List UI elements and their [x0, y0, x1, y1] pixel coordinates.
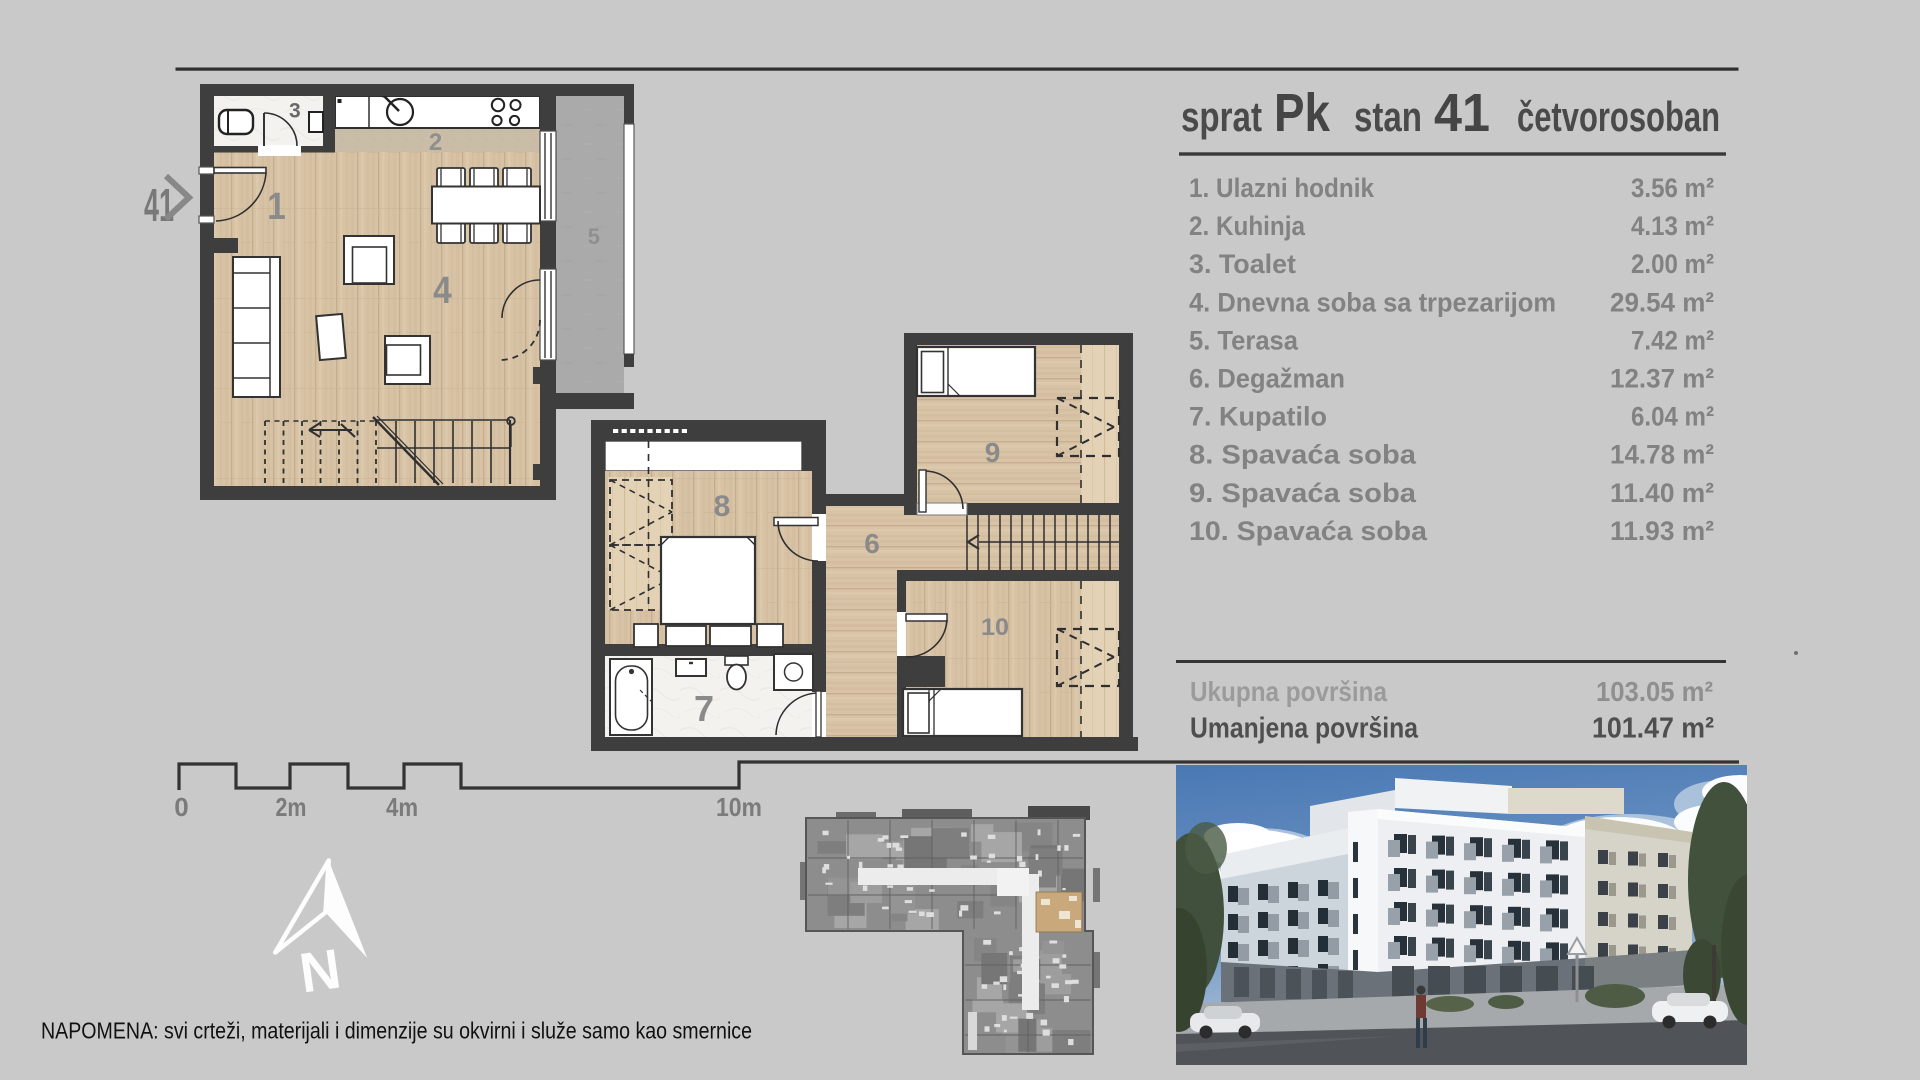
svg-text:1: 1	[267, 185, 286, 227]
svg-text:sprat: sprat	[1181, 93, 1262, 140]
svg-text:2: 2	[429, 129, 442, 156]
svg-text:6: 6	[864, 528, 880, 559]
svg-text:103.05 m²: 103.05 m²	[1596, 676, 1713, 707]
svg-text:5. Terasa: 5. Terasa	[1189, 325, 1299, 355]
svg-text:41: 41	[1434, 83, 1490, 143]
svg-text:14.78 m²: 14.78 m²	[1610, 440, 1714, 470]
svg-text:101.47 m²: 101.47 m²	[1592, 713, 1714, 745]
svg-text:12.37 m²: 12.37 m²	[1610, 364, 1714, 394]
svg-text:Umanjena površina: Umanjena površina	[1190, 713, 1419, 745]
svg-text:četvorosoban: četvorosoban	[1517, 93, 1720, 140]
svg-text:2. Kuhinja: 2. Kuhinja	[1189, 211, 1306, 241]
svg-text:7. Kupatilo: 7. Kupatilo	[1189, 402, 1327, 432]
svg-text:Ukupna površina: Ukupna površina	[1190, 676, 1387, 707]
svg-text:0: 0	[174, 792, 188, 822]
svg-text:9: 9	[985, 437, 1001, 468]
svg-text:NAPOMENA: svi crteži, materija: NAPOMENA: svi crteži, materijali i dimen…	[41, 1018, 752, 1044]
svg-text:10. Spavaća soba: 10. Spavaća soba	[1189, 516, 1428, 546]
svg-text:8: 8	[714, 490, 731, 523]
svg-text:6.04 m²: 6.04 m²	[1631, 402, 1714, 432]
svg-text:9. Spavaća soba: 9. Spavaća soba	[1189, 478, 1417, 508]
svg-text:4m: 4m	[386, 792, 418, 822]
svg-text:10: 10	[981, 614, 1009, 641]
svg-text:11.40 m²: 11.40 m²	[1610, 478, 1714, 508]
svg-text:3.56 m²: 3.56 m²	[1631, 173, 1714, 203]
svg-text:4.13 m²: 4.13 m²	[1631, 211, 1714, 241]
svg-text:10m: 10m	[716, 792, 762, 822]
svg-text:29.54 m²: 29.54 m²	[1610, 287, 1714, 317]
svg-text:8. Spavaća soba: 8. Spavaća soba	[1189, 440, 1417, 470]
svg-text:stan: stan	[1354, 93, 1422, 140]
svg-text:4. Dnevna soba sa trpezarijom: 4. Dnevna soba sa trpezarijom	[1189, 287, 1556, 317]
svg-text:6. Degažman: 6. Degažman	[1189, 364, 1345, 394]
svg-text:5: 5	[588, 224, 600, 249]
svg-text:7.42 m²: 7.42 m²	[1631, 325, 1714, 355]
svg-text:4: 4	[433, 269, 452, 311]
svg-text:Pk: Pk	[1274, 83, 1331, 143]
svg-text:11.93 m²: 11.93 m²	[1610, 516, 1714, 546]
svg-text:7: 7	[694, 688, 714, 729]
svg-text:3. Toalet: 3. Toalet	[1189, 249, 1296, 279]
svg-text:1. Ulazni hodnik: 1. Ulazni hodnik	[1189, 173, 1375, 203]
svg-text:41: 41	[144, 179, 174, 231]
svg-text:2m: 2m	[276, 792, 307, 822]
svg-text:2.00 m²: 2.00 m²	[1631, 249, 1714, 279]
svg-text:3: 3	[289, 100, 301, 123]
